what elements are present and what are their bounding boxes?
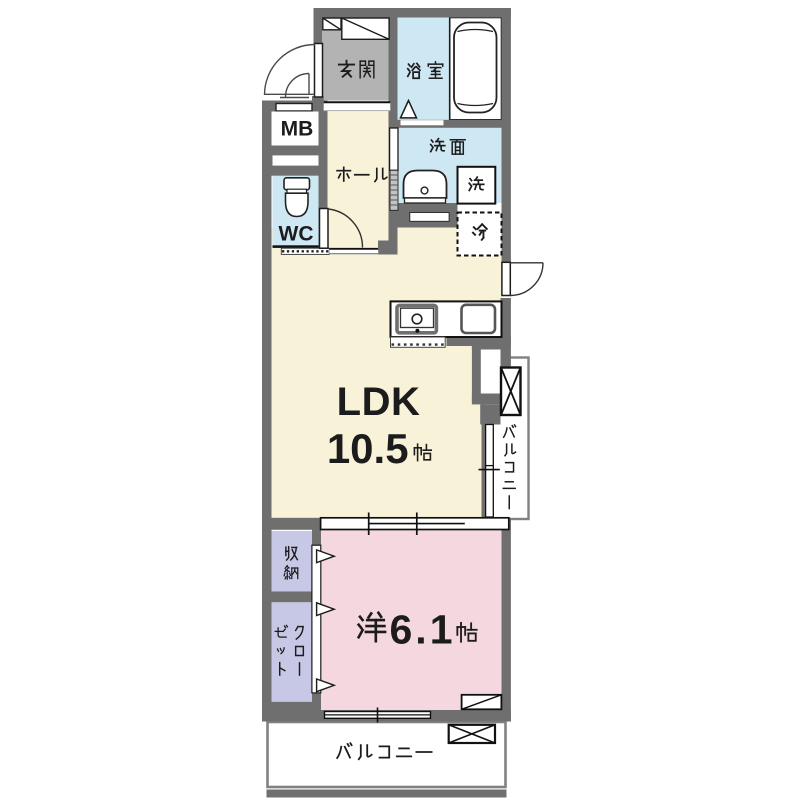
svg-text:10.5: 10.5 xyxy=(327,425,409,472)
svg-text:WC: WC xyxy=(279,223,314,246)
svg-text:MB: MB xyxy=(281,117,314,140)
svg-text:LDK: LDK xyxy=(337,380,421,424)
svg-text:6.1: 6.1 xyxy=(390,607,456,653)
